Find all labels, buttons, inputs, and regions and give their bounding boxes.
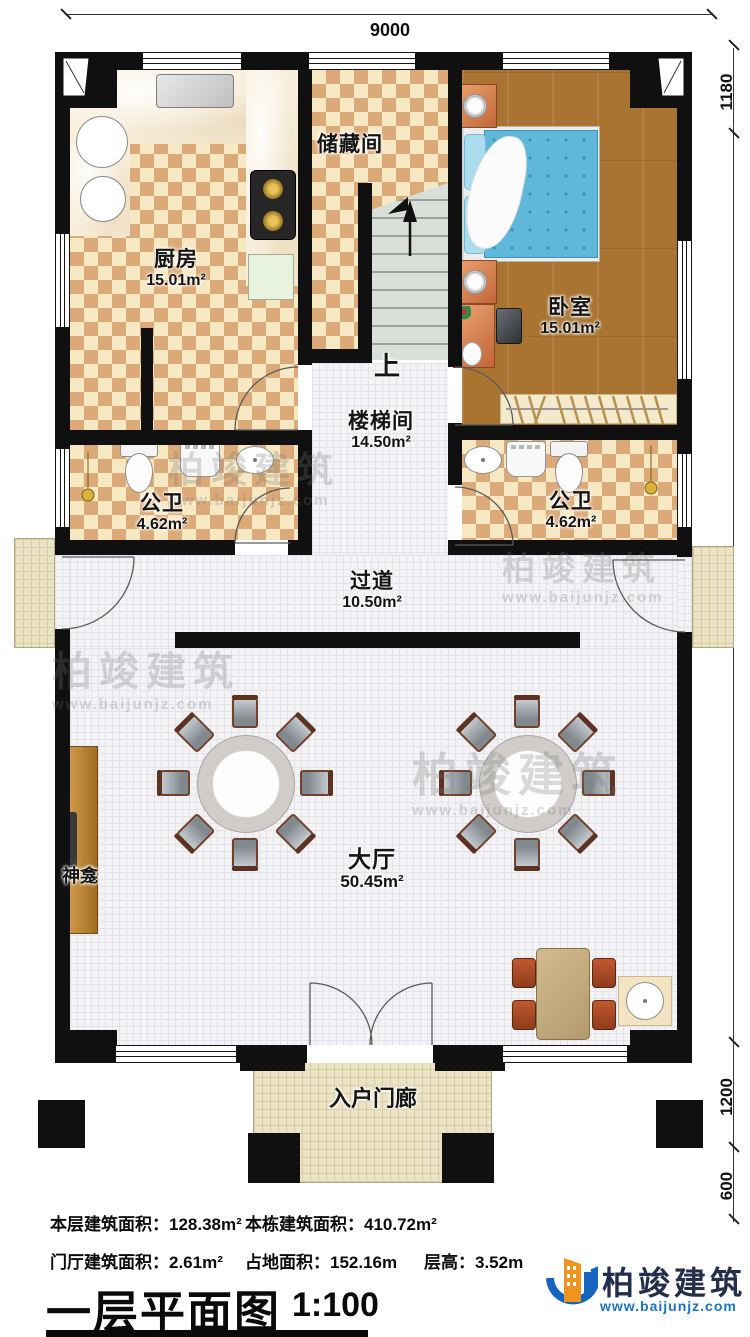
kitchen-label: 厨房 15.01m² — [116, 248, 236, 291]
wall — [448, 70, 462, 367]
window — [142, 52, 242, 70]
wall — [141, 328, 153, 445]
wall — [358, 183, 372, 363]
stat-foyer-area: 门厅建筑面积：2.61m² — [50, 1248, 223, 1273]
watermark: 柏竣建筑 www.baijunjz.com — [412, 752, 624, 818]
chair — [300, 770, 330, 796]
kitchen-stove — [250, 170, 296, 240]
porch-column — [442, 1133, 494, 1183]
stair-up-label: 上 — [372, 352, 402, 382]
corner-pier — [630, 52, 692, 108]
wall — [298, 70, 312, 365]
stairwell-label: 楼梯间 14.50m² — [316, 410, 446, 453]
stat-building-area: 本栋建筑面积：410.72m² — [245, 1210, 437, 1235]
wall — [70, 430, 312, 445]
dim-tick — [728, 127, 739, 138]
porch-column — [248, 1133, 300, 1183]
title-underline — [46, 1330, 368, 1337]
watermark: 柏竣建筑 www.baijunjz.com — [502, 552, 663, 605]
wall — [175, 632, 580, 648]
kitchen-pot — [80, 176, 126, 222]
chair — [512, 958, 536, 988]
brand-url: www.baijunjz.com — [600, 1298, 737, 1314]
dim-tick — [728, 1141, 739, 1152]
shrine-label: 神龛 — [52, 866, 108, 887]
window — [677, 240, 692, 380]
wardrobe — [500, 394, 677, 424]
chair — [232, 838, 258, 868]
corner-pier — [55, 52, 117, 108]
staircase — [372, 183, 448, 360]
wall — [448, 423, 462, 485]
right-side-porch — [692, 546, 734, 648]
kitchen-fridge — [248, 254, 294, 300]
stat-floor-area: 本层建筑面积：128.38m² — [50, 1210, 242, 1235]
brand-logo-icon — [540, 1252, 598, 1316]
window — [115, 1045, 237, 1063]
column — [38, 1100, 85, 1148]
chair — [514, 698, 540, 728]
wall — [240, 1045, 305, 1071]
chair — [592, 1000, 616, 1030]
window — [55, 448, 70, 528]
door-opening — [55, 555, 70, 629]
scale-label: 1:100 — [292, 1286, 379, 1325]
wash-basin — [464, 446, 502, 474]
square-table — [536, 948, 590, 1040]
kitchen-sink — [156, 74, 234, 108]
stat-land-area: 占地面积：152.16m — [245, 1248, 397, 1273]
corner-pier — [630, 1030, 692, 1063]
window — [677, 453, 692, 528]
window — [308, 52, 416, 70]
dim-tick — [728, 39, 739, 50]
dim-right-top: 1180 — [717, 72, 737, 112]
bath-right-label: 公卫 4.62m² — [521, 490, 621, 533]
top-dimension-line — [65, 14, 712, 15]
top-dimension-label: 9000 — [340, 20, 440, 41]
corridor-label: 过道 10.50m² — [312, 570, 432, 613]
window — [502, 1045, 628, 1063]
kitchen-pot — [76, 116, 128, 168]
floor-plan: 9000 1180 13800 1200 600 — [0, 0, 750, 1337]
chair — [160, 770, 190, 796]
hall-label: 大厅 50.45m² — [312, 846, 432, 892]
dim-right-bottom: 600 — [717, 1168, 737, 1204]
washing-machine — [506, 441, 546, 477]
watermark: 柏竣建筑 www.baijunjz.com — [52, 652, 240, 712]
wall — [70, 540, 235, 555]
chair — [592, 958, 616, 988]
chair — [512, 1000, 536, 1030]
dim-tick — [728, 1213, 739, 1224]
left-side-porch — [14, 538, 55, 648]
chair — [514, 838, 540, 868]
desk-stool — [462, 342, 482, 366]
window — [55, 233, 70, 328]
dim-right-low: 1200 — [717, 1077, 737, 1117]
door-opening — [677, 557, 692, 632]
wall — [435, 1045, 505, 1071]
bedroom-label: 卧室 15.01m² — [510, 296, 630, 339]
wall — [462, 425, 692, 440]
storage-label: 储藏间 — [295, 133, 405, 157]
window — [502, 52, 610, 70]
entrance-opening — [307, 1045, 433, 1063]
page-title: 一层平面图 — [46, 1276, 281, 1337]
porch-label: 入户门廊 — [300, 1086, 446, 1111]
dim-tick — [728, 1036, 739, 1047]
wall — [288, 540, 312, 555]
stat-floor-height: 层高：3.52m — [424, 1248, 523, 1273]
round-dining-table — [197, 735, 295, 833]
column — [656, 1100, 703, 1148]
bath-left-label: 公卫 4.62m² — [112, 492, 212, 535]
corner-pier — [55, 1030, 117, 1063]
corner-basin-dot — [643, 999, 647, 1003]
